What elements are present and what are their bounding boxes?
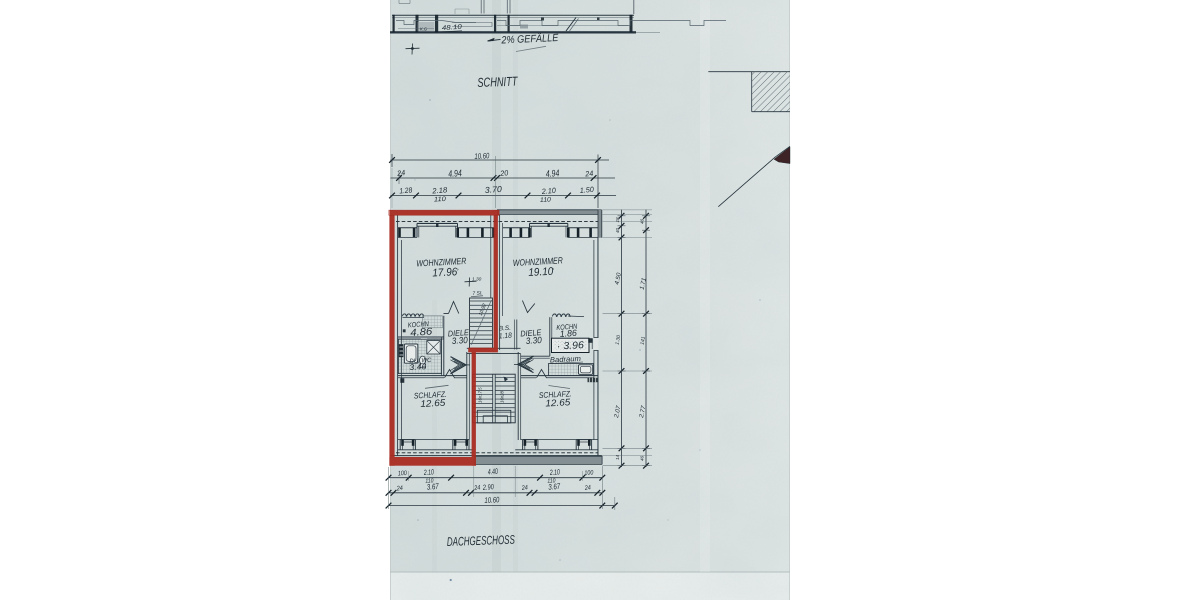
- svg-text:DACHGESCHOSS: DACHGESCHOSS: [447, 533, 516, 549]
- svg-text:12.65: 12.65: [545, 397, 571, 409]
- svg-text:3.30: 3.30: [525, 335, 542, 346]
- svg-text:24: 24: [584, 169, 594, 179]
- svg-text:100: 100: [584, 469, 594, 477]
- svg-text:SCHNITT: SCHNITT: [477, 74, 518, 90]
- svg-text:3.70: 3.70: [484, 184, 502, 195]
- svg-text:100: 100: [398, 470, 408, 478]
- svg-text:4.40: 4.40: [488, 467, 499, 477]
- svg-text:3.67: 3.67: [426, 482, 439, 492]
- svg-text:°: °: [457, 269, 459, 275]
- svg-text:20: 20: [499, 168, 510, 178]
- svg-text:3.67: 3.67: [548, 482, 561, 492]
- svg-text:2.18: 2.18: [431, 185, 449, 195]
- svg-text:40: 40: [615, 227, 620, 233]
- svg-text:· 3.96: · 3.96: [557, 340, 585, 352]
- svg-text:1.50: 1.50: [579, 185, 595, 195]
- svg-text:4.94: 4.94: [545, 168, 559, 180]
- svg-text:19.10: 19.10: [528, 266, 554, 279]
- svg-text:16x17.5: 16x17.5: [478, 387, 483, 403]
- svg-text:K.G: K.G: [420, 27, 427, 32]
- svg-text:°: °: [552, 268, 554, 274]
- svg-text:3.30: 3.30: [451, 335, 468, 346]
- svg-text:46: 46: [640, 455, 645, 461]
- svg-text:14: 14: [615, 454, 620, 460]
- svg-text:2.10: 2.10: [423, 467, 435, 477]
- svg-text:1.30: 1.30: [472, 277, 482, 283]
- svg-text:4.94: 4.94: [448, 168, 462, 180]
- svg-text:18: 18: [615, 217, 620, 223]
- svg-text:1.86: 1.86: [559, 328, 577, 339]
- svg-text:24: 24: [473, 484, 481, 492]
- svg-text:16x28: 16x28: [500, 390, 505, 403]
- svg-text:3.46: 3.46: [409, 362, 427, 372]
- svg-text:2.90: 2.90: [482, 482, 495, 492]
- svg-text:24: 24: [521, 484, 529, 492]
- svg-text:46: 46: [640, 218, 645, 224]
- svg-text:24: 24: [584, 484, 592, 492]
- svg-text:1.28: 1.28: [399, 185, 413, 195]
- svg-text:24: 24: [396, 485, 404, 493]
- svg-text:10.60: 10.60: [484, 495, 500, 505]
- svg-text:24: 24: [396, 168, 406, 178]
- svg-text:10.60: 10.60: [474, 151, 490, 161]
- svg-text:110: 110: [540, 196, 552, 204]
- svg-text:1.18: 1.18: [499, 331, 513, 341]
- svg-text:12.65: 12.65: [420, 398, 446, 410]
- svg-text:2.10: 2.10: [549, 467, 561, 477]
- svg-text:2.10: 2.10: [540, 186, 556, 196]
- svg-text:2% GEFÄLLE: 2% GEFÄLLE: [500, 32, 559, 47]
- svg-text:110: 110: [434, 196, 447, 204]
- svg-text:17.96: 17.96: [432, 266, 458, 279]
